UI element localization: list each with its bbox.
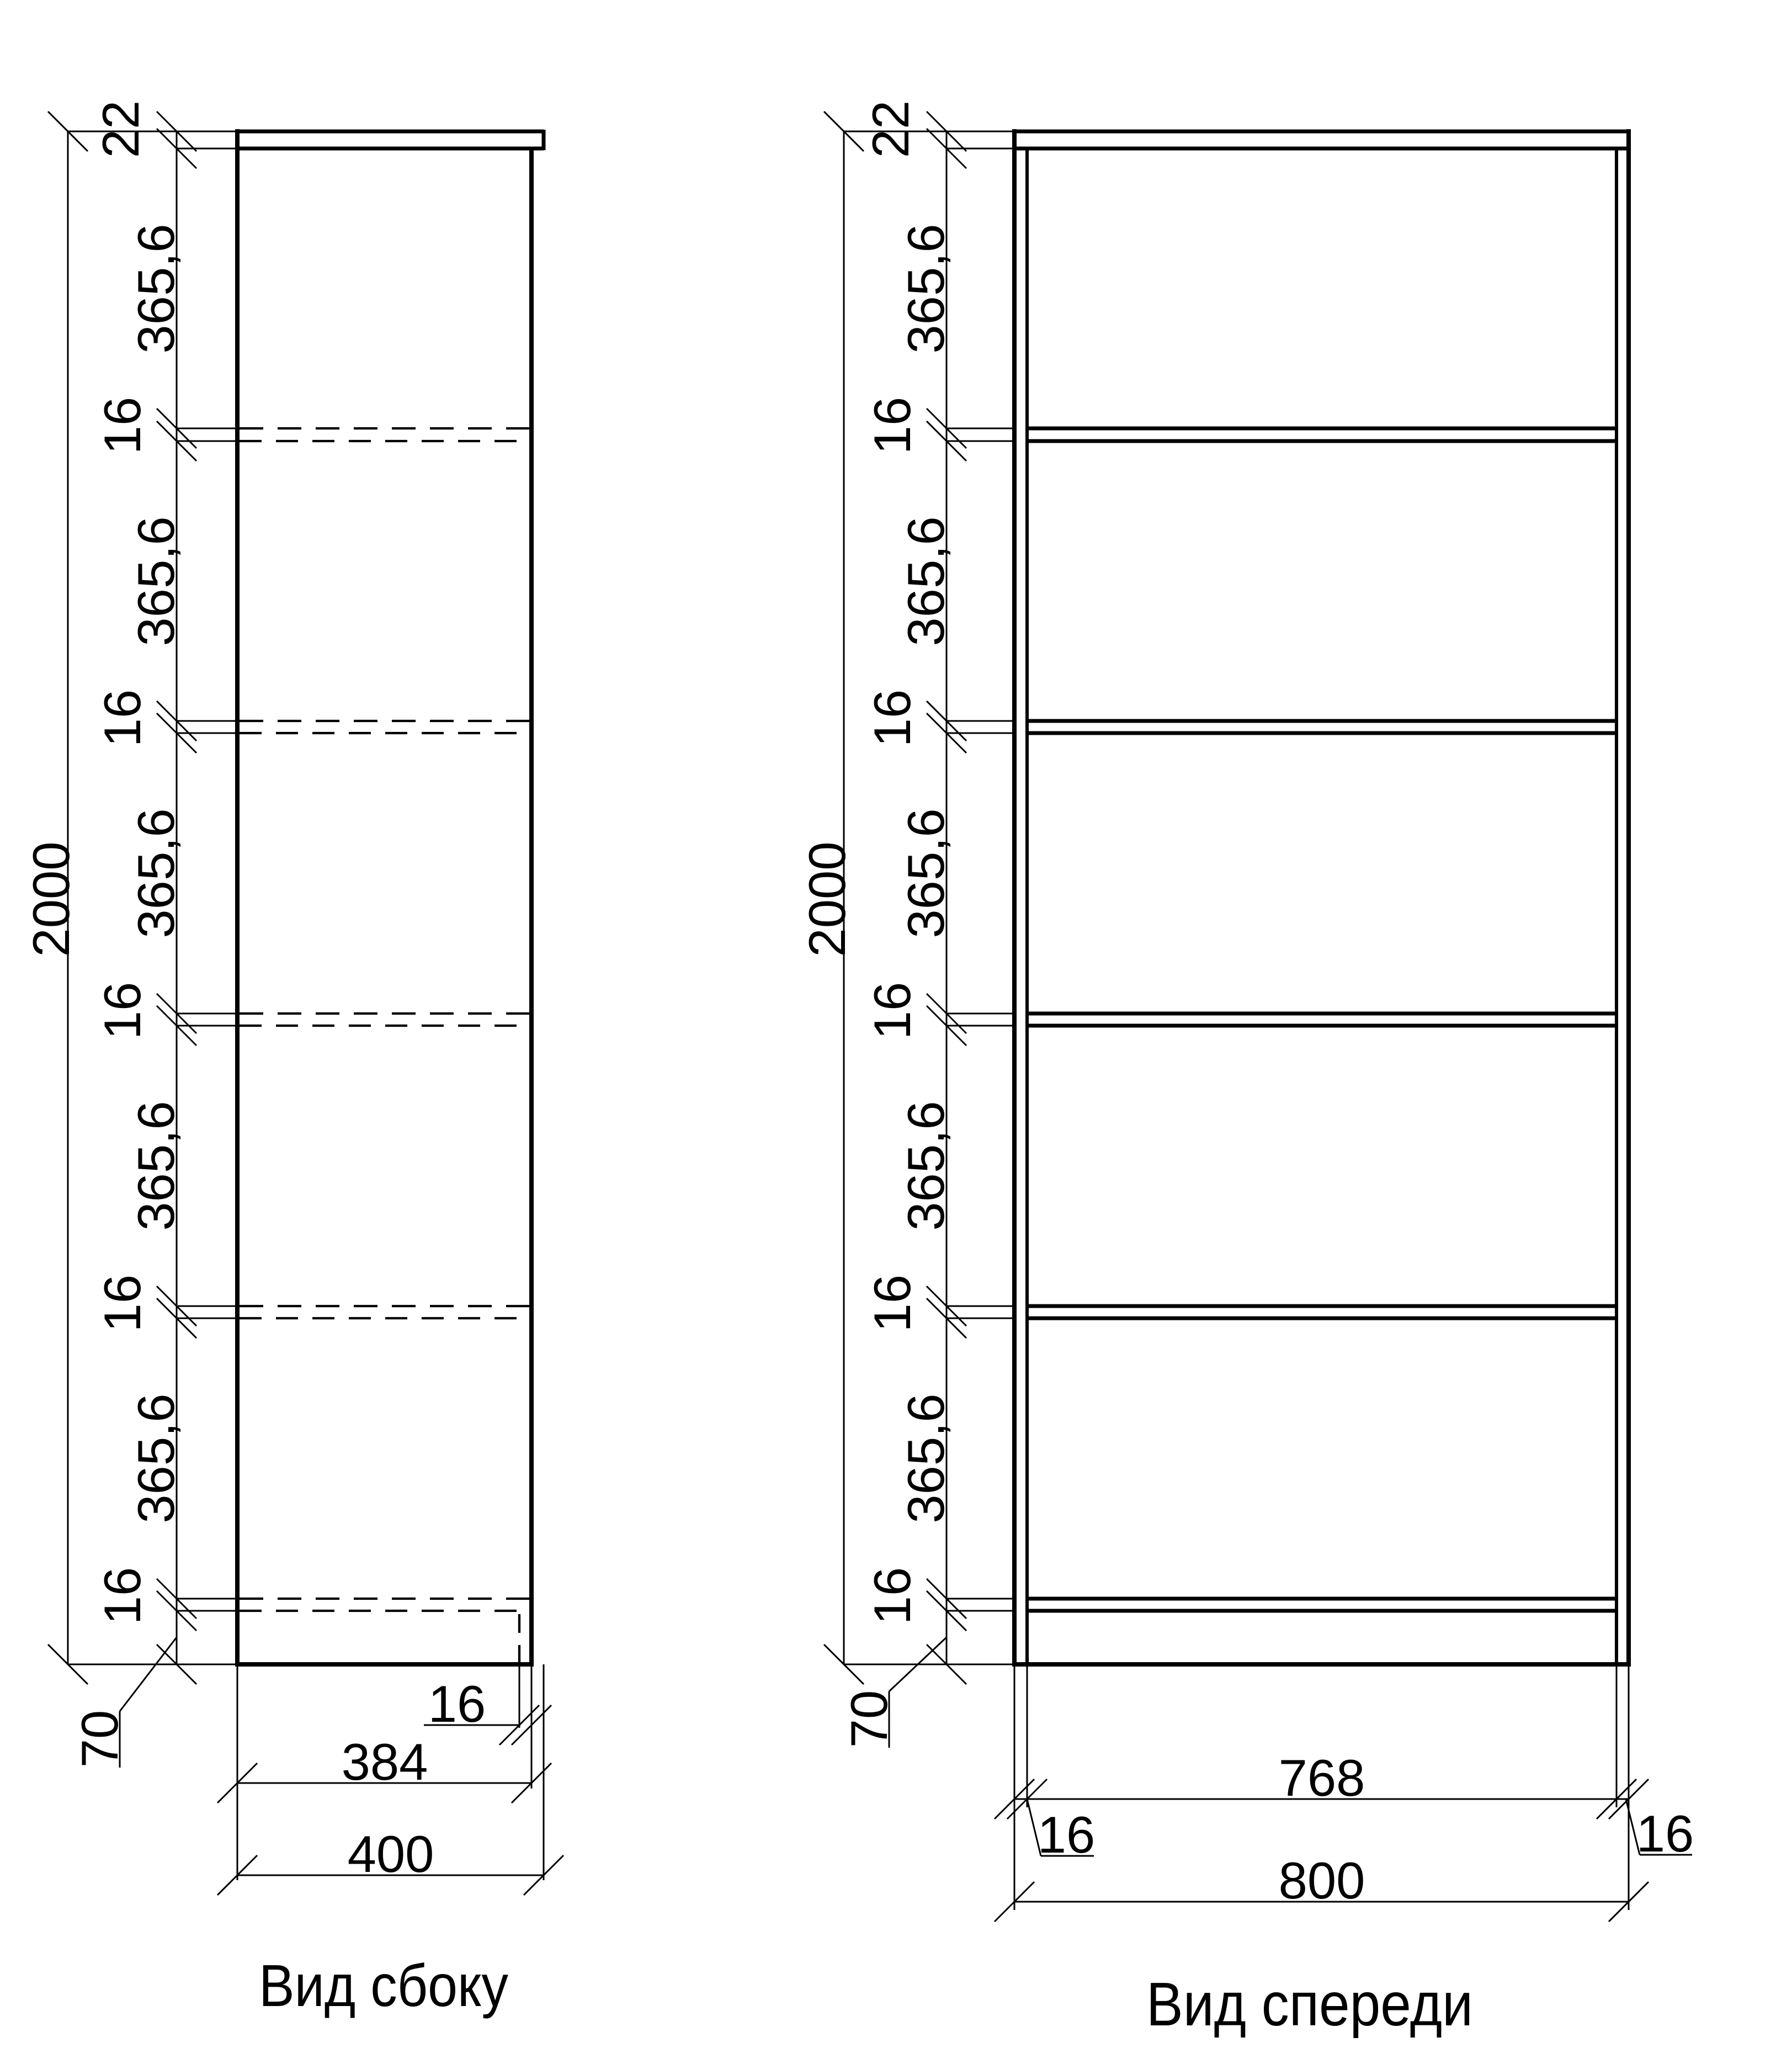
svg-text:800: 800 — [1279, 1851, 1365, 1909]
svg-text:16: 16 — [863, 397, 921, 455]
svg-text:365,6: 365,6 — [897, 224, 955, 353]
svg-text:16: 16 — [1636, 1805, 1694, 1863]
svg-text:365,6: 365,6 — [127, 1393, 185, 1523]
svg-text:16: 16 — [93, 1275, 151, 1333]
svg-text:384: 384 — [342, 1733, 428, 1791]
svg-text:Вид сбоку: Вид сбоку — [259, 1952, 508, 2019]
svg-text:70: 70 — [840, 1690, 898, 1748]
svg-text:16: 16 — [93, 689, 151, 747]
svg-text:768: 768 — [1279, 1749, 1365, 1807]
svg-text:365,6: 365,6 — [897, 1393, 955, 1523]
svg-text:2000: 2000 — [798, 841, 856, 957]
svg-text:16: 16 — [863, 1567, 921, 1625]
svg-text:365,6: 365,6 — [127, 516, 185, 646]
svg-text:22: 22 — [92, 100, 150, 158]
svg-text:365,6: 365,6 — [897, 516, 955, 646]
svg-text:365,6: 365,6 — [897, 1101, 955, 1230]
svg-text:365,6: 365,6 — [127, 1101, 185, 1230]
svg-text:22: 22 — [862, 100, 919, 158]
svg-text:16: 16 — [863, 982, 921, 1040]
svg-text:16: 16 — [93, 1567, 151, 1625]
svg-text:365,6: 365,6 — [127, 808, 185, 938]
svg-text:Вид спереди: Вид спереди — [1146, 1970, 1473, 2039]
svg-text:2000: 2000 — [22, 841, 80, 957]
svg-text:16: 16 — [428, 1675, 486, 1733]
svg-text:16: 16 — [863, 689, 921, 747]
svg-text:365,6: 365,6 — [127, 224, 185, 353]
svg-text:16: 16 — [93, 982, 151, 1040]
svg-text:365,6: 365,6 — [897, 808, 955, 938]
svg-text:16: 16 — [1038, 1806, 1096, 1864]
svg-text:16: 16 — [93, 397, 151, 455]
svg-text:70: 70 — [71, 1710, 129, 1768]
svg-text:400: 400 — [348, 1825, 434, 1883]
svg-text:16: 16 — [863, 1275, 921, 1333]
